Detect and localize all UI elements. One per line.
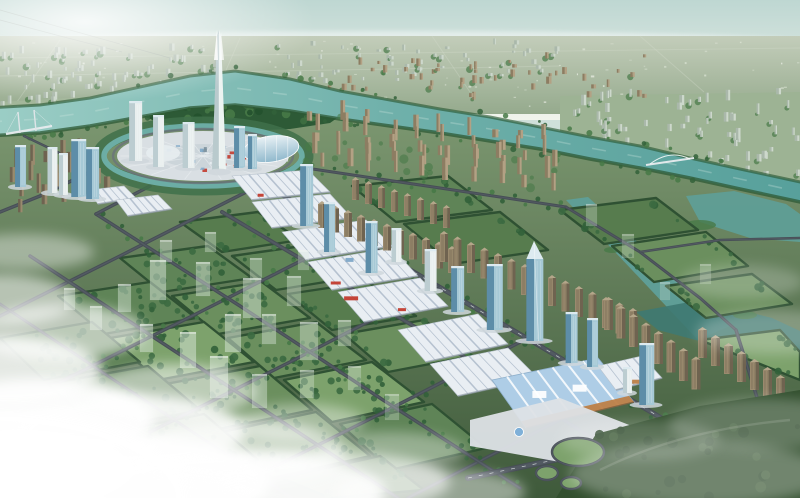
fountain: [515, 428, 524, 437]
aerial-masterplan-rendering: [0, 0, 800, 498]
city-rendering-canvas: [0, 0, 800, 498]
